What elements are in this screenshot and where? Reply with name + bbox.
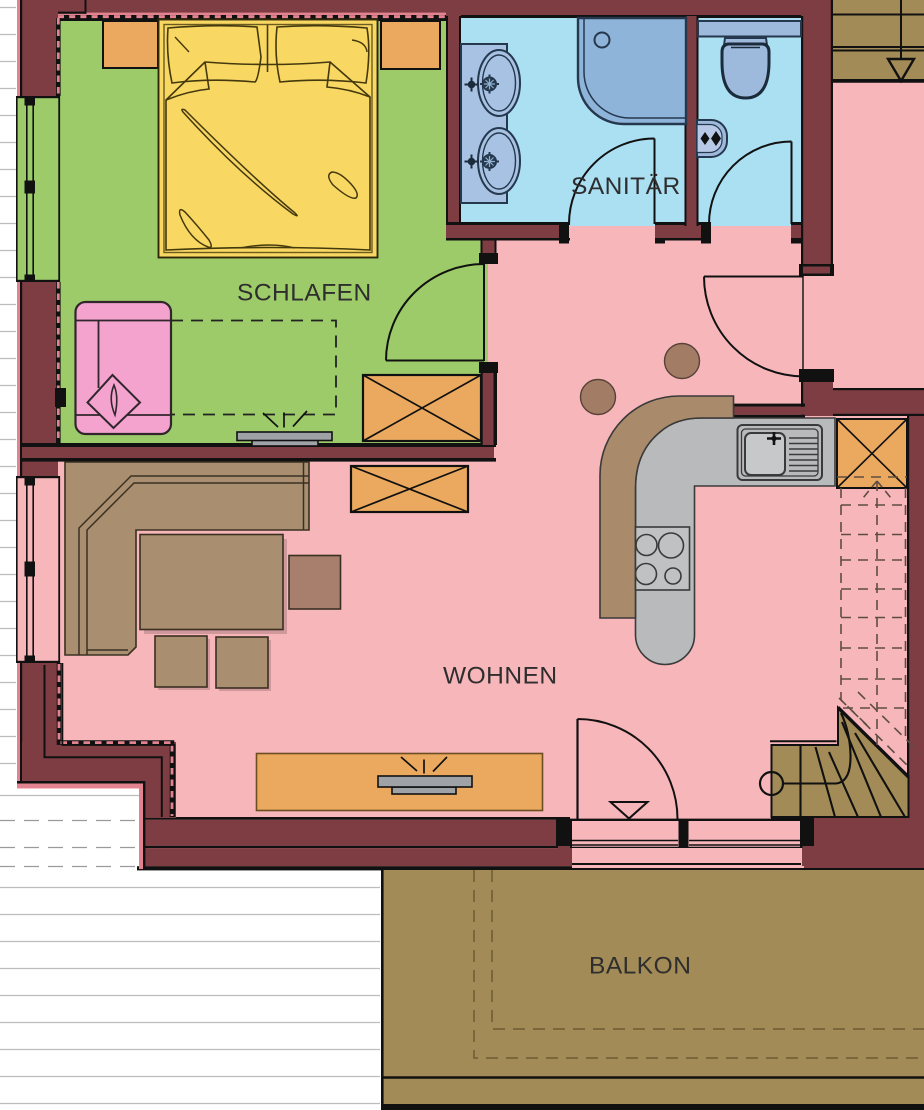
svg-text:SANITÄR: SANITÄR [571, 173, 681, 200]
svg-text:SCHLAFEN: SCHLAFEN [237, 280, 372, 307]
svg-text:WOHNEN: WOHNEN [443, 663, 558, 690]
svg-text:BALKON: BALKON [589, 953, 691, 980]
